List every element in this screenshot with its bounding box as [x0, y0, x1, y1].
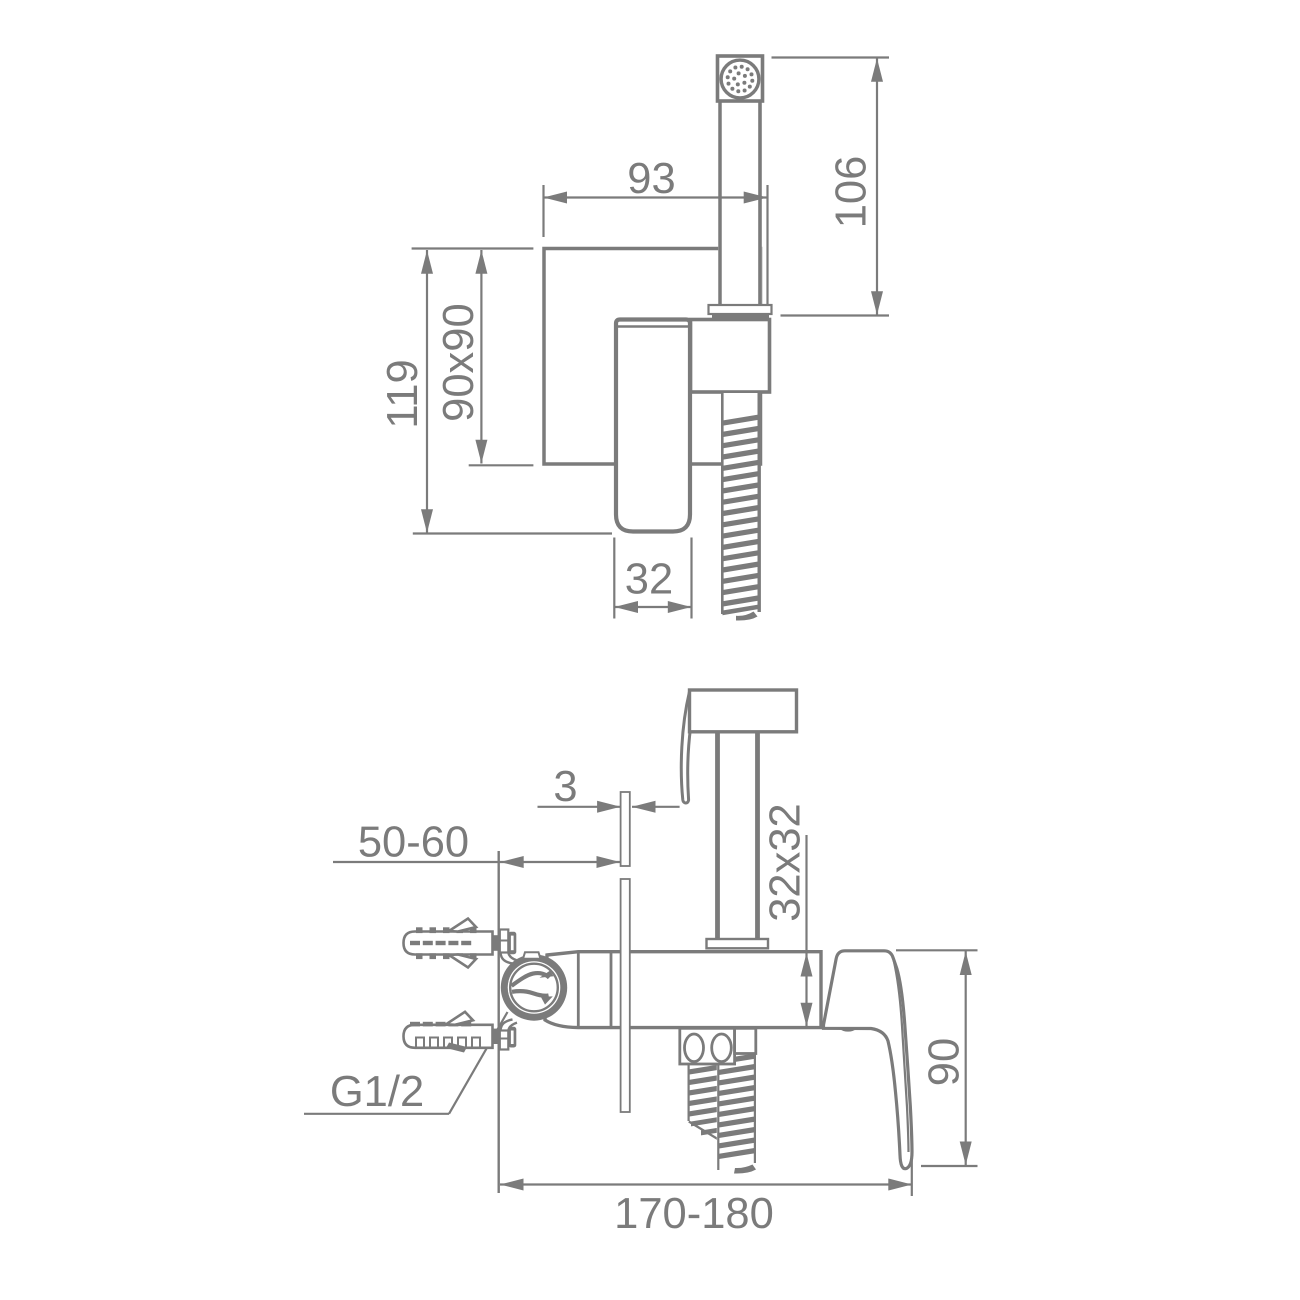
svg-text:90: 90 [920, 1038, 968, 1086]
svg-text:119: 119 [379, 359, 427, 428]
svg-text:170-180: 170-180 [614, 1190, 774, 1238]
svg-text:32x32: 32x32 [761, 803, 809, 922]
svg-text:3: 3 [553, 763, 577, 811]
svg-text:90x90: 90x90 [435, 303, 483, 422]
svg-text:32: 32 [625, 556, 673, 604]
svg-text:106: 106 [827, 156, 875, 229]
svg-text:G1/2: G1/2 [330, 1068, 424, 1116]
svg-text:50-60: 50-60 [358, 819, 469, 867]
svg-text:93: 93 [627, 155, 675, 203]
